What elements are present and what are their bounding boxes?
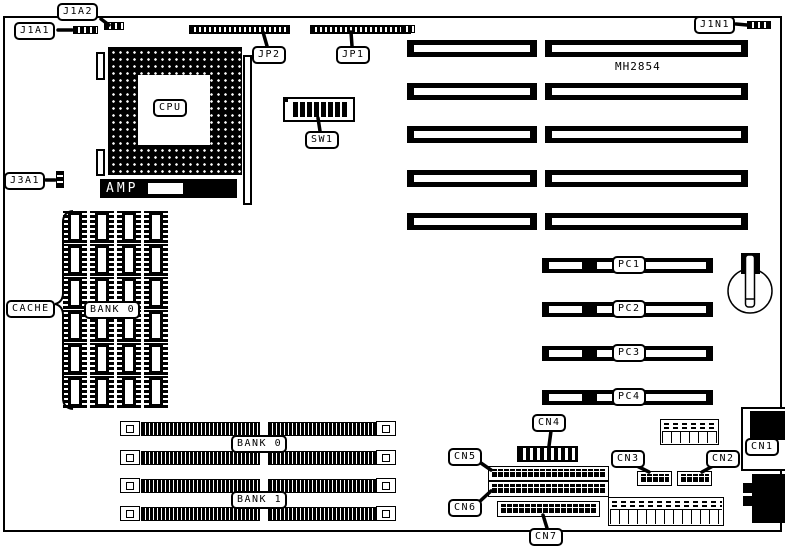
j1n1-connector [747, 21, 771, 29]
isa-slot [545, 40, 748, 57]
isa-slot [407, 126, 537, 143]
cn7-header [497, 501, 600, 517]
cn6-label: CN6 [448, 499, 482, 517]
motherboard-diagram: MH2854 PC1 PC2 PC3 PC4 BANK 0 BANK 1 C [0, 0, 785, 552]
isa-slot [407, 40, 537, 57]
cn3-header [637, 471, 672, 486]
cache-chip [117, 343, 141, 375]
cache-label: CACHE [6, 300, 55, 318]
cpu-label: CPU [153, 99, 187, 117]
cache-chip [90, 244, 114, 276]
jp1-label: JP1 [336, 46, 370, 64]
j1a2-label: J1A2 [57, 3, 98, 21]
cache-chip [90, 343, 114, 375]
cache-chip [144, 310, 168, 342]
amp-label: AMP [106, 181, 138, 196]
j1a1-connector [73, 26, 98, 34]
cn2-header [677, 471, 712, 486]
j3a1-connector [56, 171, 64, 188]
cn4-connector [517, 446, 578, 462]
power-connector-large [608, 497, 724, 526]
isa-slot [545, 126, 748, 143]
socket-lever [243, 55, 252, 205]
chip-marking-text: MH2854 [615, 60, 661, 73]
isa-slot [545, 213, 748, 230]
small-connector [401, 25, 415, 33]
socket-tab [96, 149, 105, 176]
jp1-jumper-strip [310, 25, 411, 34]
pc2-label: PC2 [612, 300, 646, 318]
socket-tab [96, 52, 105, 80]
din-connector [752, 474, 785, 523]
cn7-label: CN7 [529, 528, 563, 546]
cache-chip [63, 244, 87, 276]
cache-chip [63, 343, 87, 375]
jp2-label: JP2 [252, 46, 286, 64]
cache-chip [144, 277, 168, 309]
din-prong [743, 496, 754, 506]
cache-chip [144, 244, 168, 276]
simm-bank1-label: BANK 1 [231, 491, 287, 509]
j1a1-label: J1A1 [14, 22, 55, 40]
cn5-header [488, 466, 609, 481]
isa-slot [545, 170, 748, 187]
cn1-label: CN1 [745, 438, 779, 456]
cache-bank0-label: BANK 0 [84, 301, 140, 319]
cache-chip [63, 376, 87, 408]
cache-chip [144, 343, 168, 375]
sw1-label: SW1 [305, 131, 339, 149]
cn2-label: CN2 [706, 450, 740, 468]
isa-slot [407, 170, 537, 187]
pc4-label: PC4 [612, 388, 646, 406]
cn6-header [488, 481, 609, 497]
jp2-jumper-strip [189, 25, 290, 34]
cache-chip [90, 376, 114, 408]
cache-chip [117, 376, 141, 408]
isa-slot [407, 213, 537, 230]
isa-slot [407, 83, 537, 100]
power-connector-small [660, 419, 719, 445]
simm-slot-1 [120, 421, 396, 436]
cache-chip [117, 244, 141, 276]
cn3-label: CN3 [611, 450, 645, 468]
cache-chip [144, 376, 168, 408]
sw1-dip-switch [283, 97, 355, 122]
isa-slot [545, 83, 748, 100]
cache-chip [144, 211, 168, 243]
cache-chip [117, 211, 141, 243]
cache-chip [90, 211, 114, 243]
j1a2-connector [104, 22, 124, 30]
cache-chip [63, 211, 87, 243]
pc1-label: PC1 [612, 256, 646, 274]
simm-bank0-label: BANK 0 [231, 435, 287, 453]
amp-regulator: AMP [100, 179, 237, 198]
din-prong [743, 483, 754, 493]
j3a1-label: J3A1 [4, 172, 45, 190]
cn5-label: CN5 [448, 448, 482, 466]
j1n1-label: J1N1 [694, 16, 735, 34]
pc3-label: PC3 [612, 344, 646, 362]
cn4-label: CN4 [532, 414, 566, 432]
